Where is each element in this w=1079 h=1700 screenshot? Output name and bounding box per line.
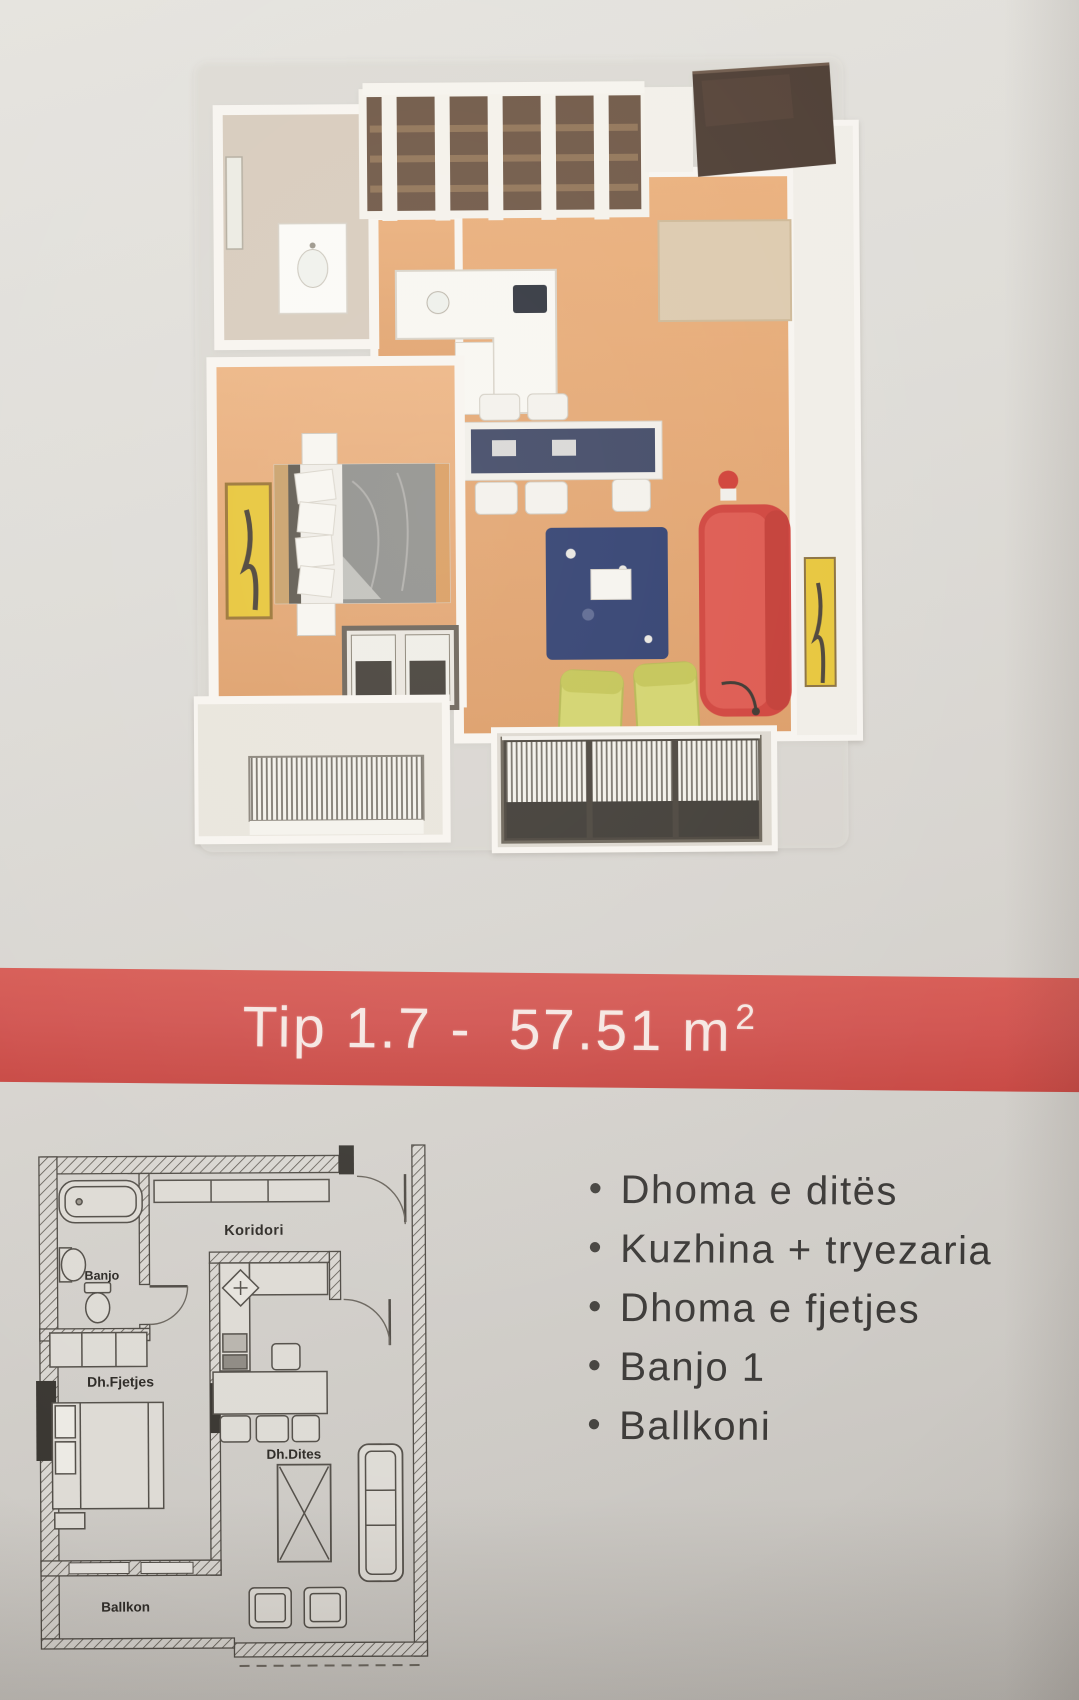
room-list-label: Kuzhina + tryezaria	[620, 1227, 992, 1274]
nightstand-1	[302, 433, 337, 464]
balcony-right-3d	[494, 728, 775, 850]
room-list-item: •Dhoma e fjetjes	[588, 1279, 992, 1340]
floorplan-3d-render	[189, 28, 865, 863]
bullet-icon: •	[588, 1346, 603, 1384]
room-list: •Dhoma e ditës •Kuzhina + tryezaria •Dho…	[587, 1161, 993, 1458]
floorplan-2d-svg: Koridori Banjo Dh.Fjetjes Dh.Dites Ballk…	[26, 1047, 434, 1689]
balcony-grille	[249, 756, 423, 821]
floorplan-3d-svg	[189, 28, 865, 863]
bathroom-mirror	[226, 157, 243, 249]
room-label-dh-dites: Dh.Dites	[266, 1447, 321, 1462]
sink-basin	[298, 249, 328, 287]
glass-doors	[502, 736, 761, 838]
room-list-label: Dhoma e fjetjes	[620, 1286, 921, 1333]
room-list-item: •Banjo 1	[587, 1338, 991, 1399]
floorplan-2d-drawing: Koridori Banjo Dh.Fjetjes Dh.Dites Ballk…	[26, 1047, 434, 1689]
top-wall	[645, 87, 694, 172]
cooktop	[513, 285, 547, 313]
room-label-koridori: Koridori	[224, 1223, 284, 1239]
toilet	[85, 1283, 111, 1293]
coffee-table	[591, 569, 631, 599]
column	[339, 1145, 354, 1174]
room-label-dh-fjetjes: Dh.Fjetjes	[87, 1373, 154, 1389]
bedroom-closet-2d	[50, 1332, 147, 1367]
room-list-item: •Kuzhina + tryezaria	[588, 1220, 992, 1281]
brochure-page: Tip 1.7 - 57.51 m2	[0, 0, 1079, 1700]
room-list-label: Banjo 1	[619, 1345, 765, 1391]
kitchen-rug	[658, 220, 791, 321]
bed	[274, 464, 450, 604]
room-list-label: Dhoma e ditës	[620, 1168, 898, 1215]
bullet-icon: •	[587, 1405, 602, 1443]
room-list-item: •Dhoma e ditës	[589, 1161, 993, 1222]
hall-wardrobe	[154, 1179, 329, 1202]
bedroom-3d	[211, 360, 461, 709]
flower-vase	[718, 471, 738, 491]
room-label-banjo: Banjo	[84, 1269, 119, 1283]
square-meter-exponent: 2	[735, 998, 758, 1037]
wardrobe-3d	[692, 64, 836, 177]
bullet-icon: •	[588, 1228, 603, 1266]
balcony-window	[69, 1563, 129, 1574]
room-list-item: •Ballkoni	[587, 1397, 991, 1458]
bathroom-3d	[218, 109, 375, 345]
bullet-icon: •	[589, 1169, 604, 1207]
bullet-icon: •	[588, 1287, 603, 1325]
kitchen-sink	[427, 292, 449, 314]
room-list-label: Ballkoni	[619, 1404, 771, 1450]
balcony-left-3d	[194, 699, 447, 841]
dining-table-2d	[213, 1371, 327, 1414]
balcony-door	[141, 1562, 193, 1573]
nightstand-2	[297, 603, 335, 635]
pergola-3d	[362, 81, 645, 221]
room-label-ballkon: Ballkon	[101, 1599, 150, 1614]
